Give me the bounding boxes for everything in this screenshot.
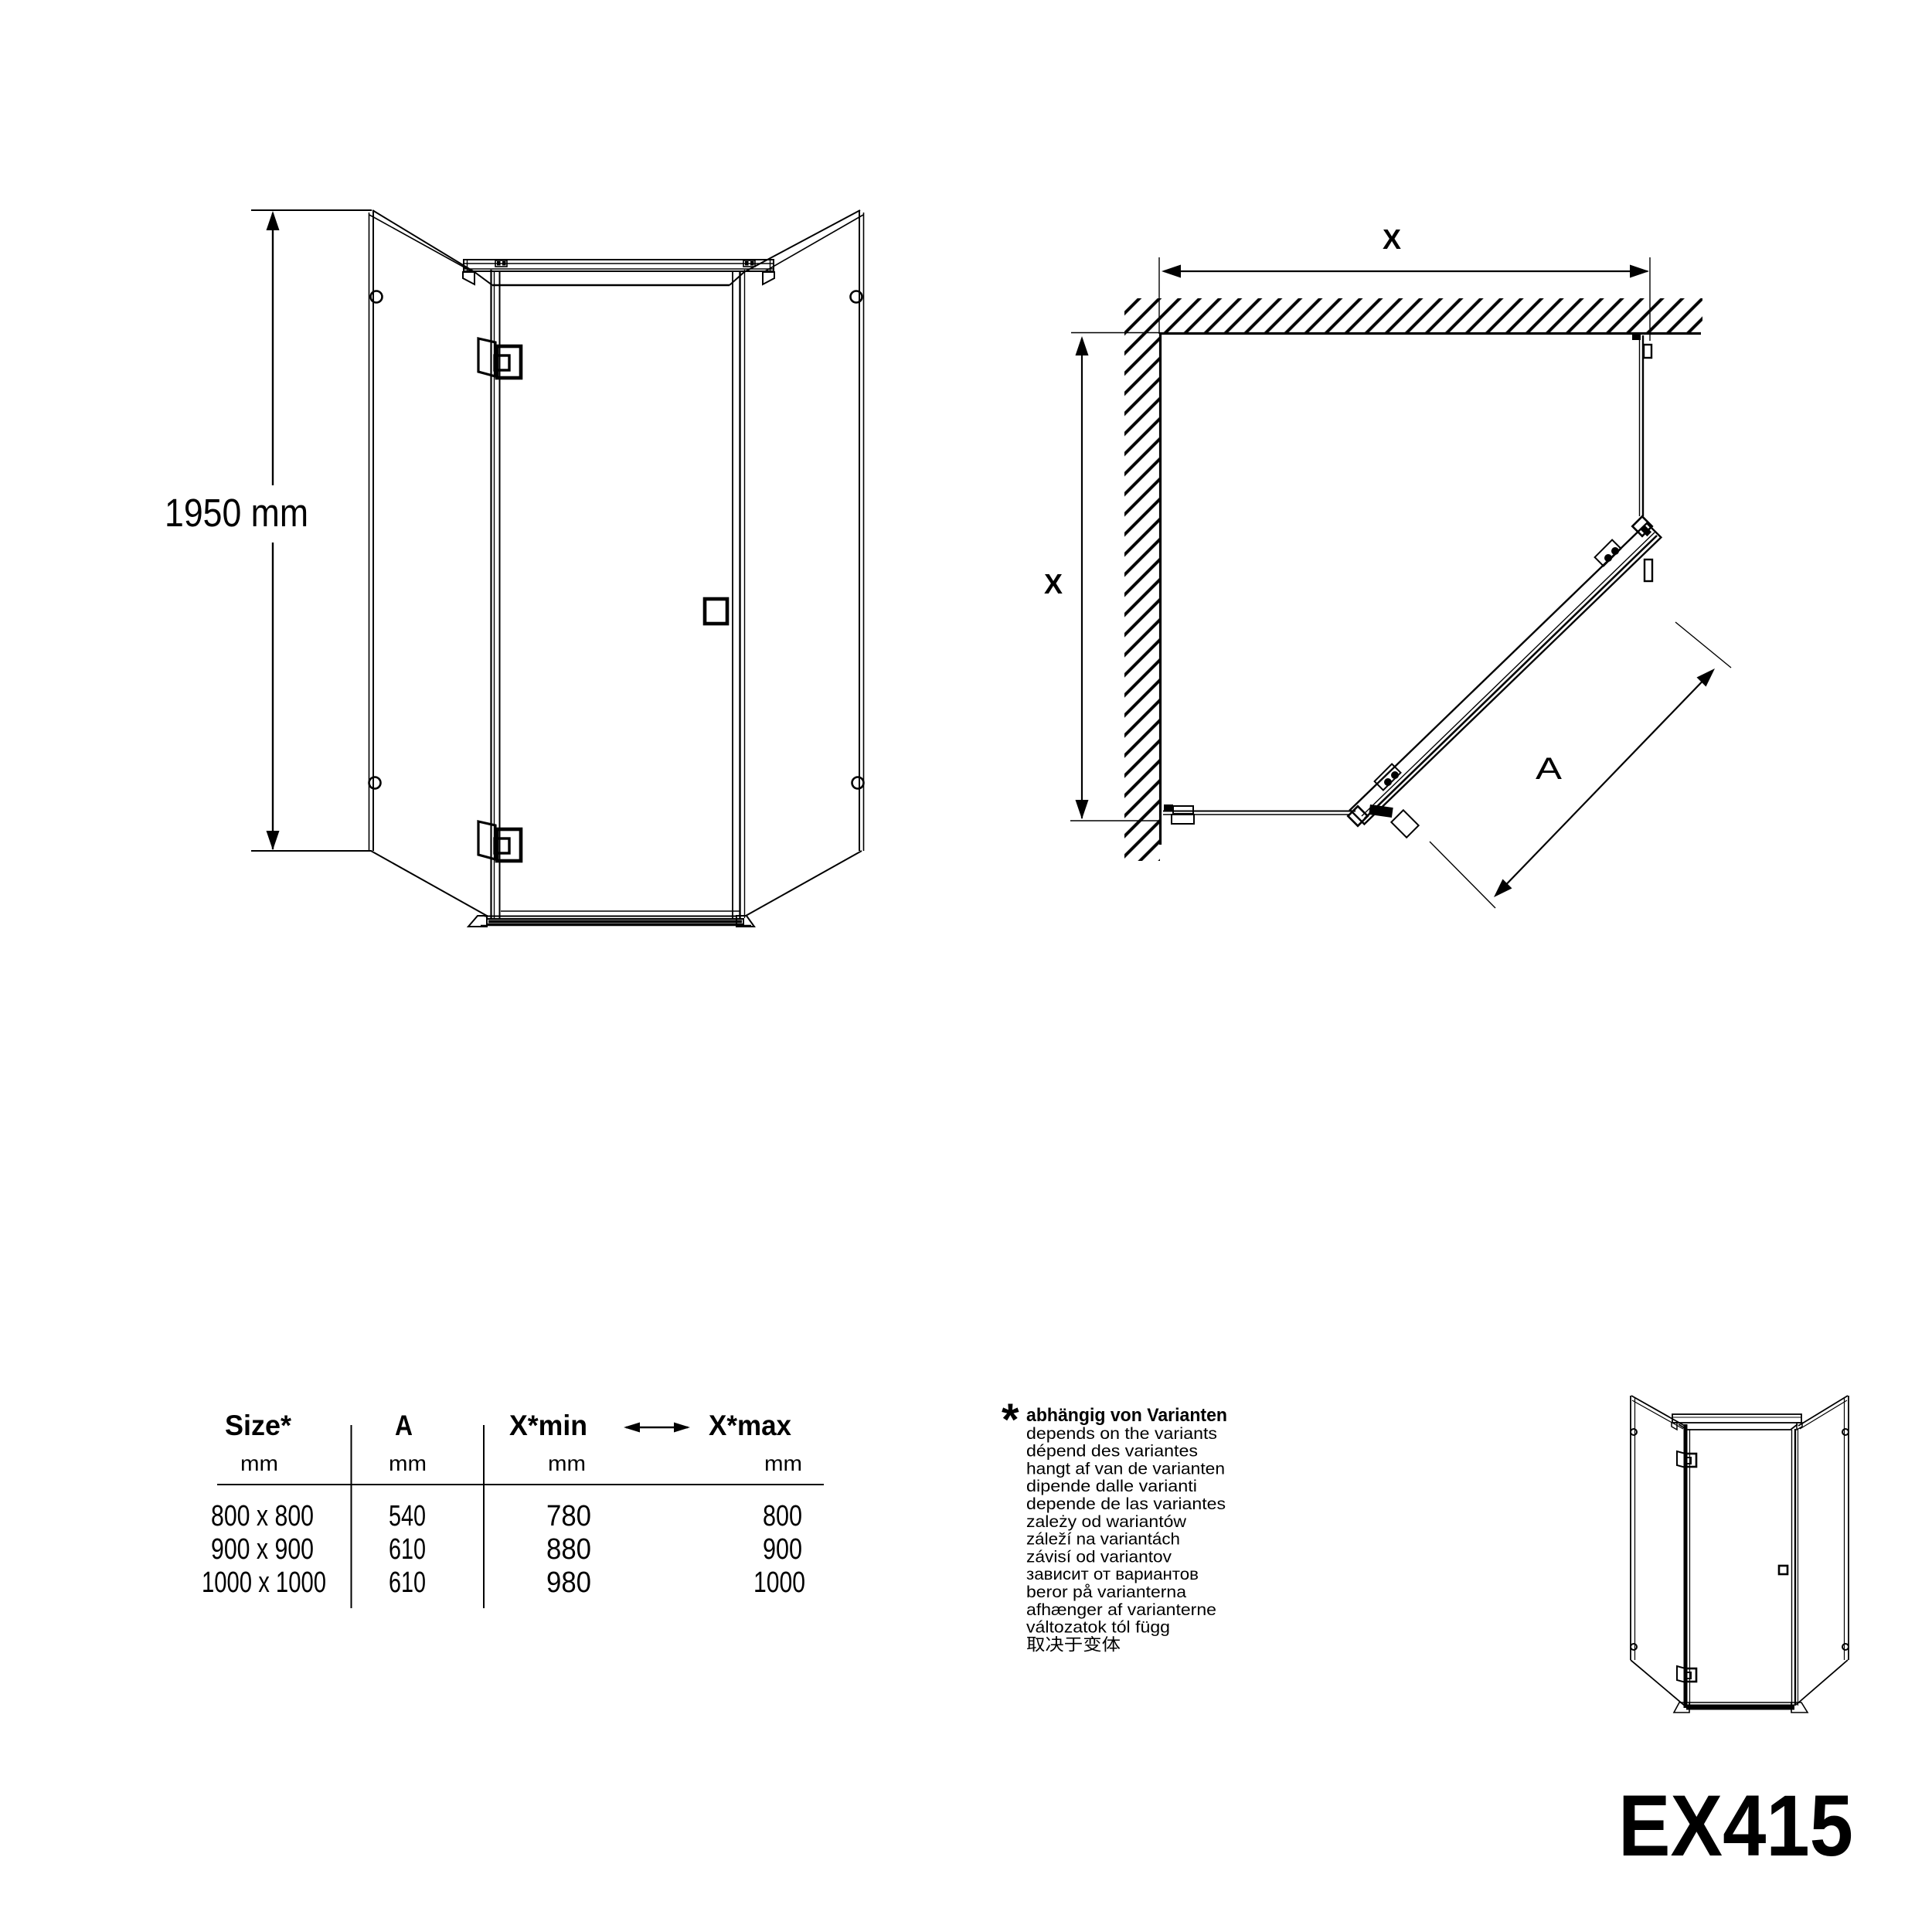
svg-text:900: 900 — [763, 1533, 802, 1566]
svg-text:Size*: Size* — [225, 1410, 292, 1441]
svg-text:取决于变体: 取决于变体 — [1026, 1635, 1121, 1654]
svg-text:1950 mm: 1950 mm — [165, 491, 308, 535]
svg-text:zależy od wariantów: zależy od wariantów — [1026, 1512, 1186, 1531]
svg-text:depends on the variants: depends on the variants — [1026, 1424, 1217, 1443]
svg-text:X*max: X*max — [709, 1410, 791, 1441]
svg-text:980: 980 — [546, 1566, 591, 1599]
svg-text:880: 880 — [546, 1533, 591, 1566]
svg-text:závisí od variantov: závisí od variantov — [1026, 1547, 1172, 1566]
svg-text:780: 780 — [546, 1500, 591, 1532]
svg-text:800: 800 — [763, 1500, 802, 1532]
svg-text:mm: mm — [764, 1451, 802, 1475]
svg-text:1000: 1000 — [753, 1566, 805, 1599]
svg-text:abhängig von Varianten: abhängig von Varianten — [1026, 1405, 1227, 1426]
svg-text:зависит от вариантов: зависит от вариантов — [1026, 1565, 1199, 1583]
svg-text:540: 540 — [389, 1500, 426, 1532]
svg-text:900 x 900: 900 x 900 — [211, 1533, 314, 1566]
svg-text:záleží na variantách: záleží na variantách — [1026, 1530, 1180, 1549]
svg-text:A: A — [395, 1410, 413, 1441]
svg-text:dépend des variantes: dépend des variantes — [1026, 1442, 1198, 1461]
svg-text:dipende dalle varianti: dipende dalle varianti — [1026, 1477, 1197, 1495]
svg-text:változatok tól függ: változatok tól függ — [1026, 1618, 1170, 1637]
svg-text:depende de las variantes: depende de las variantes — [1026, 1495, 1226, 1513]
svg-text:800 x 800: 800 x 800 — [211, 1500, 314, 1532]
svg-text:1000 x 1000: 1000 x 1000 — [202, 1566, 326, 1599]
svg-text:X: X — [1044, 568, 1063, 600]
svg-text:mm: mm — [389, 1451, 427, 1475]
svg-text:X: X — [1383, 223, 1401, 255]
svg-text:beror på varianterna: beror på varianterna — [1026, 1583, 1186, 1601]
svg-text:hangt af van de varianten: hangt af van de varianten — [1026, 1459, 1225, 1478]
svg-text:610: 610 — [389, 1533, 426, 1566]
svg-text:610: 610 — [389, 1566, 426, 1599]
svg-text:afhænger af varianterne: afhænger af varianterne — [1026, 1600, 1216, 1619]
svg-text:A: A — [1536, 752, 1562, 786]
svg-text:*: * — [1002, 1395, 1019, 1445]
svg-text:EX415: EX415 — [1618, 1777, 1853, 1874]
svg-text:X*min: X*min — [509, 1410, 587, 1441]
svg-text:mm: mm — [240, 1451, 278, 1475]
svg-text:mm: mm — [548, 1451, 586, 1475]
